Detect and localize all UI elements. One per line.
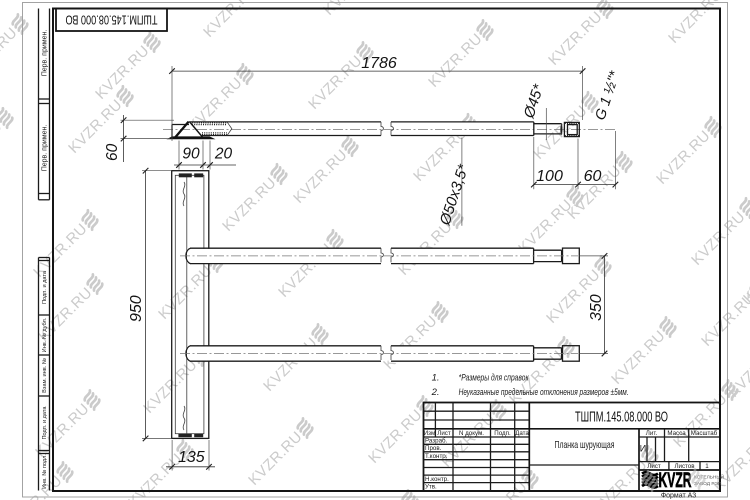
svg-text:20: 20 [214,146,233,163]
svg-text:KVZR.RU: KVZR.RU [219,174,280,235]
svg-text:Подп. и дата: Подп. и дата [42,270,48,304]
svg-text:Взам. инв. №: Взам. инв. № [42,358,48,393]
svg-text:KVZR.RU: KVZR.RU [0,24,21,85]
svg-text:KVZR.RU: KVZR.RU [665,0,726,47]
svg-text:KVZR.RU: KVZR.RU [290,146,351,207]
svg-text:1786: 1786 [361,55,397,72]
svg-text:2.: 2. [431,387,440,398]
svg-text:1: 1 [705,463,709,470]
svg-text:KVZR: KVZR [659,469,692,492]
svg-text:Масштаб: Масштаб [691,430,718,437]
svg-text:Н.контр.: Н.контр. [425,476,449,483]
svg-text:60: 60 [104,143,121,161]
svg-text:KVZR.RU: KVZR.RU [688,208,749,269]
svg-text:Лит.: Лит. [646,430,658,437]
svg-text:Пров.: Пров. [425,445,442,452]
svg-text:Перв. примен.: Перв. примен. [41,30,48,77]
svg-text:Перв. примен.: Перв. примен. [41,125,48,172]
svg-text:И: И [640,444,646,454]
svg-text:60: 60 [584,168,602,185]
svg-text:*Размеры для справок: *Размеры для справок [459,373,529,384]
svg-text:Ø50х3,5*: Ø50х3,5* [436,161,472,228]
svg-text:ТШПМ.145.08.000 ВО: ТШПМ.145.08.000 ВО [66,13,158,28]
svg-text:KVZR.RU: KVZR.RU [0,118,6,179]
svg-text:KVZR.RU: KVZR.RU [608,327,669,388]
svg-text:350: 350 [588,294,605,321]
svg-text:Изм: Изм [424,430,436,437]
svg-text:Неуказанные предельные отклоне: Неуказанные предельные отклонения размер… [459,387,629,398]
svg-text:KVZR.RU: KVZR.RU [305,52,366,113]
svg-text:Инв. № подл.: Инв. № подл. [42,454,48,489]
svg-text:90: 90 [182,146,200,163]
svg-text:Подп. и дата: Подп. и дата [42,406,48,440]
svg-text:N докум.: N докум. [459,430,484,437]
svg-text:KVZR.RU: KVZR.RU [5,472,66,500]
svg-text:KVZR.RU: KVZR.RU [670,390,731,451]
svg-text:950: 950 [128,295,145,322]
svg-text:Инв. № дубл.: Инв. № дубл. [42,317,48,352]
svg-text:Планка шурующая: Планка шурующая [555,439,615,451]
svg-text:KVZR.RU: KVZR.RU [365,406,426,467]
svg-text:Ø45*: Ø45* [520,81,547,121]
svg-text:Формат А3: Формат А3 [661,493,696,500]
svg-text:Масса: Масса [667,430,686,437]
svg-text:KVZR.RU: KVZR.RU [155,262,216,323]
svg-text:KVZR.RU: KVZR.RU [545,8,606,69]
svg-text:KVZR.RU: KVZR.RU [590,456,651,500]
svg-text:Дата: Дата [515,430,529,437]
svg-text:KVZR.RU: KVZR.RU [200,0,261,41]
svg-text:Разраб.: Разраб. [425,438,448,445]
svg-text:Утв.: Утв. [425,484,437,491]
svg-text:KVZR.RU: KVZR.RU [380,312,441,373]
svg-text:ТШПМ.145.08.000 ВО: ТШПМ.145.08.000 ВО [575,410,668,426]
svg-text:100: 100 [536,168,563,185]
svg-text:Т.контр.: Т.контр. [425,453,448,460]
svg-text:KVZR.RU: KVZR.RU [698,289,750,350]
svg-text:G 1 ½"*: G 1 ½"* [593,68,624,122]
svg-text:KVZR.RU: KVZR.RU [125,450,186,500]
svg-text:KVZR.RU: KVZR.RU [260,334,321,395]
svg-text:KVZR.RU: KVZR.RU [425,30,486,91]
svg-text:KVZR.RU: KVZR.RU [245,428,306,489]
svg-text:1.: 1. [432,373,440,384]
svg-text:KVZR.RU: KVZR.RU [30,220,91,281]
svg-text:KVZR.RU: KVZR.RU [140,356,201,417]
svg-text:Подп.: Подп. [494,430,511,437]
svg-text:135: 135 [178,449,205,466]
svg-text:KVZR.RU: KVZR.RU [653,127,714,188]
svg-text:Лист: Лист [437,430,451,437]
svg-text:KVZR.RU: KVZR.RU [438,410,499,471]
